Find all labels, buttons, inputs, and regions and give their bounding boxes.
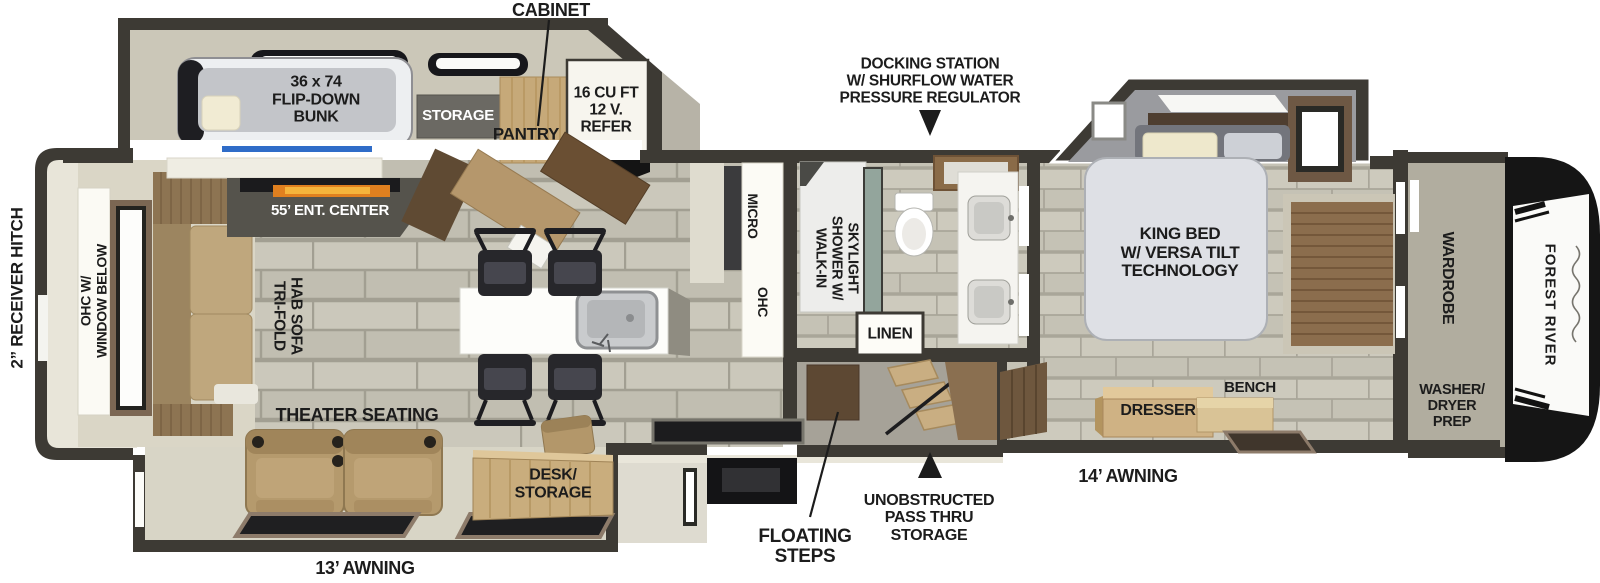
bedroom-skylight-frame	[1148, 113, 1292, 127]
label-pantry: PANTRY	[493, 126, 559, 145]
label-awning-13: 13’ AWNING	[315, 559, 414, 579]
bench	[1197, 398, 1273, 432]
bedroom-window-left	[1093, 103, 1125, 139]
bunk-wall-left	[118, 18, 130, 162]
label-king-bed: KING BED W/ VERSA TILT TECHNOLOGY	[1121, 225, 1240, 281]
label-receiver-hitch: 2” RECEIVER HITCH	[7, 207, 26, 368]
label-storage: STORAGE	[422, 108, 494, 125]
living-window	[110, 200, 152, 416]
wood-cabinet	[153, 172, 231, 224]
label-shower-line2: SHOWER W/	[828, 216, 844, 300]
label-washer-dryer: WASHER/ DRYER PREP	[1419, 383, 1485, 431]
label-pass-thru: UNOBSTRUCTED PASS THRU STORAGE	[864, 492, 995, 544]
kitchen-island	[460, 288, 690, 356]
bunk-exterior-wedge	[662, 72, 700, 163]
bath-wall-right	[1027, 150, 1040, 383]
label-flip-down-bunk: 36 x 74 FLIP-DOWN BUNK	[272, 74, 360, 127]
bath-wall-left	[783, 150, 797, 443]
label-desk-storage: DESK/ STORAGE	[515, 466, 592, 501]
rear-cap-window	[38, 295, 48, 361]
slideout-window-1	[236, 514, 418, 536]
label-ohc-window-line1: OHC W/	[78, 244, 94, 358]
label-linen: LINEN	[867, 325, 912, 342]
label-ent-center: 55’ ENT. CENTER	[271, 203, 389, 220]
docking-arrow-icon	[919, 110, 941, 136]
toilet	[895, 193, 933, 256]
headboard	[1135, 125, 1290, 161]
label-wardrobe: WARDROBE	[1438, 232, 1456, 325]
wall-bottom-a	[606, 443, 707, 455]
bedroom-skylight	[1158, 95, 1288, 112]
slideout-side-window	[135, 472, 144, 527]
label-shower-line3: SKYLIGHT	[844, 216, 860, 300]
theater-seat	[344, 430, 442, 515]
passthru-hatch	[1225, 432, 1314, 452]
bedroom-front-window-2	[1396, 286, 1405, 338]
wardrobe-room-wall-bottom	[1408, 447, 1508, 458]
ohc-strip	[742, 163, 783, 357]
wardrobe-room-wall-top	[1408, 152, 1508, 163]
floor-hatch	[653, 420, 803, 443]
bath-window-2	[1019, 274, 1029, 336]
label-ohc: OHC	[754, 287, 770, 317]
label-refer: 16 CU FT 12 V. REFER	[574, 84, 639, 135]
bath-window-1	[1019, 186, 1029, 246]
label-awning-14: 14’ AWNING	[1078, 467, 1177, 487]
label-bench: BENCH	[1224, 380, 1276, 397]
label-dresser: DRESSER	[1120, 402, 1195, 420]
label-forest-river-logo: FOREST RIVER	[1541, 244, 1558, 367]
shower-glass	[864, 168, 882, 314]
wardrobe-slide	[1283, 194, 1395, 354]
label-tri-fold-sofa: HAB SOFA TRI-FOLD	[270, 277, 305, 355]
label-micro: MICRO	[744, 193, 760, 238]
led-light-strip	[222, 146, 372, 152]
bedroom-front-window-1	[1396, 182, 1405, 234]
label-walk-in-shower: SKYLIGHT SHOWER W/ WALK-IN	[812, 216, 861, 300]
label-shower-line1: WALK-IN	[812, 216, 828, 300]
rv-floorplan: CABINET 36 x 74 FLIP-DOWN BUNK STORAGE P…	[0, 0, 1600, 583]
microwave-box	[724, 166, 742, 270]
label-tri-fold-line2: HAB SOFA	[287, 277, 304, 355]
theater-seat	[246, 430, 344, 515]
slideout-wall-bottom	[133, 540, 618, 552]
entry-window-pane	[686, 472, 694, 522]
kitchen-counter-strip	[690, 163, 724, 283]
bunk-window-2-pane	[436, 58, 520, 69]
label-ohc-window-line2: WINDOW BELOW	[94, 244, 110, 358]
vanity	[958, 172, 1018, 344]
label-cabinet: CABINET	[512, 1, 590, 21]
entry-door-panel	[807, 365, 859, 420]
wardrobe-room-window	[1410, 180, 1419, 232]
bedroom-window-right	[1288, 96, 1352, 182]
label-theater-seating: THEATER SEATING	[276, 406, 439, 426]
label-docking-station: DOCKING STATION W/ SHURFLOW WATER PRESSU…	[840, 55, 1021, 106]
entry-step-inner	[722, 468, 780, 492]
label-ohc-window-below: OHC W/ WINDOW BELOW	[78, 244, 109, 358]
label-tri-fold-line1: TRI-FOLD	[270, 277, 287, 355]
label-floating-steps: FLOATING STEPS	[758, 527, 851, 567]
floorplan-graphic	[0, 0, 1600, 583]
